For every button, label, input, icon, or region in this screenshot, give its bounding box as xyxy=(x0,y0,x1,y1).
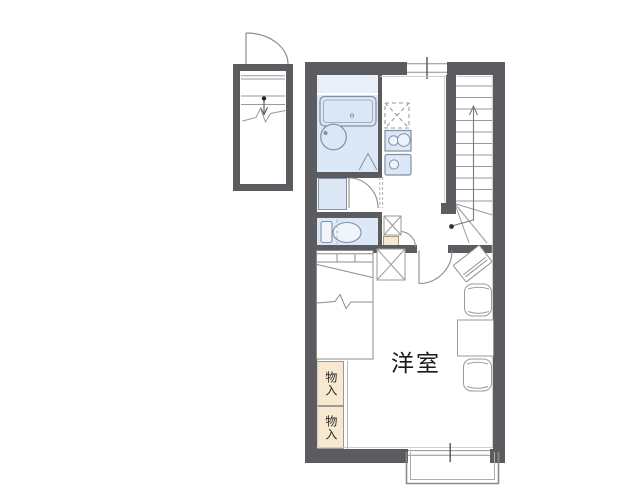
pipe-space xyxy=(384,216,401,235)
washroom-opening-dashed xyxy=(380,177,383,208)
stair-left-wall xyxy=(446,75,456,204)
storage-lower-label: 物入 xyxy=(323,415,337,441)
gas-stove xyxy=(385,131,411,152)
toilet-right-wall xyxy=(378,218,382,245)
outer-wall-bottom-right xyxy=(490,449,505,463)
toilet-room xyxy=(317,218,378,245)
chair-top xyxy=(465,284,492,316)
bed xyxy=(317,251,374,360)
washroom-toilet-partition xyxy=(317,212,382,218)
porch-interior xyxy=(240,71,286,184)
stair-wall-end-cap xyxy=(441,203,456,214)
bathroom xyxy=(317,95,378,172)
outer-wall-top-left xyxy=(305,62,407,75)
winder-tread xyxy=(456,205,487,243)
room-door xyxy=(419,251,452,284)
kitchen-top-window xyxy=(407,57,447,79)
table xyxy=(458,320,494,356)
bath-washroom-partition xyxy=(317,172,382,178)
sliding-window xyxy=(408,443,490,462)
kitchen-sink xyxy=(385,155,411,176)
chair-bottom xyxy=(464,359,492,391)
storage-lower: 物入 xyxy=(316,406,344,449)
washing-machine-space xyxy=(377,249,405,280)
outer-wall-right xyxy=(493,62,505,463)
bathroom-counter-strip xyxy=(317,75,378,93)
room-top-wall-right xyxy=(448,245,493,253)
outer-wall-bottom-left xyxy=(305,449,408,463)
staircase xyxy=(456,86,493,243)
storage-upper-label: 物入 xyxy=(323,371,337,397)
bathroom-right-wall xyxy=(378,75,382,172)
refrigerator-space xyxy=(385,103,409,128)
outer-wall-left xyxy=(305,62,317,463)
balcony xyxy=(407,452,499,484)
vanity-unit xyxy=(318,178,347,210)
winder-tread xyxy=(456,207,469,243)
bed-break-line xyxy=(317,295,373,309)
winder-tread xyxy=(456,204,493,215)
western-room-label: 洋室 xyxy=(391,344,441,378)
room-top-wall-left xyxy=(317,245,417,253)
washroom-door xyxy=(349,178,378,208)
storage-upper: 物入 xyxy=(316,361,344,406)
floorplan-canvas: 物入 物入 xyxy=(0,0,640,495)
porch-entry-door xyxy=(246,33,288,64)
